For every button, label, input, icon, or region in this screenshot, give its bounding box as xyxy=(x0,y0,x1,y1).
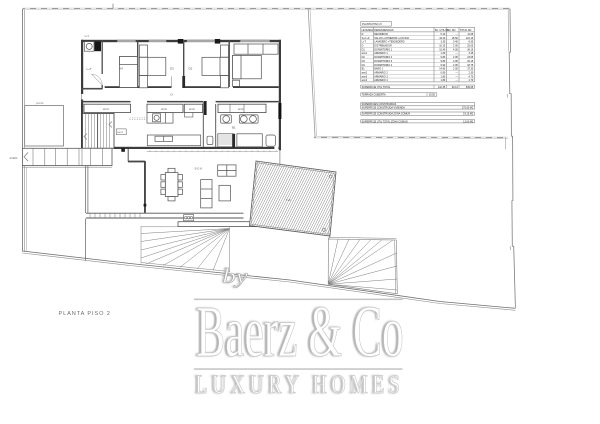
svg-text:arm2: arm2 xyxy=(189,108,195,111)
svg-text:30.13: 30.13 xyxy=(452,86,459,89)
svg-text:D: D xyxy=(171,93,174,97)
svg-text:by: by xyxy=(223,266,249,289)
svg-text:Baerz & Co: Baerz & Co xyxy=(196,290,403,371)
svg-text:170.60 M2: 170.60 M2 xyxy=(462,107,474,110)
svg-text:---: --- xyxy=(455,71,458,74)
svg-text:4.70: 4.70 xyxy=(469,75,474,78)
svg-text:9.90: 9.90 xyxy=(441,64,446,67)
svg-text:142.35: 142.35 xyxy=(438,86,446,89)
svg-text:LEYENDA: LEYENDA xyxy=(362,29,374,32)
svg-text:10.15: 10.15 xyxy=(439,45,446,48)
svg-text:arm4: arm4 xyxy=(103,108,109,111)
svg-text:DORMITORIO 2: DORMITORIO 2 xyxy=(374,56,392,59)
svg-text:B1: B1 xyxy=(232,126,236,130)
svg-text:4.05: 4.05 xyxy=(453,48,458,51)
svg-text:43.20: 43.20 xyxy=(439,37,446,40)
svg-text:2.05: 2.05 xyxy=(453,45,458,48)
svg-text:SUPERFICIE UTIL TOTAL: SUPERFICIE UTIL TOTAL xyxy=(362,86,391,89)
svg-text:arm3: arm3 xyxy=(161,108,167,111)
svg-text:RECIBIDOR: RECIBIDOR xyxy=(374,33,388,36)
svg-text:arm2: arm2 xyxy=(362,71,368,74)
svg-text:S+C+K: S+C+K xyxy=(362,37,370,40)
svg-text:D4: D4 xyxy=(119,67,123,71)
svg-text:D3: D3 xyxy=(170,67,174,71)
svg-text:2.30: 2.30 xyxy=(469,71,474,74)
svg-text:34.15: 34.15 xyxy=(467,48,474,51)
svg-text:2.05: 2.05 xyxy=(453,60,458,63)
svg-text:DEPENDENCIAS: DEPENDENCIAS xyxy=(374,29,394,32)
svg-text:PLANTA PISO 2ª: PLANTA PISO 2ª xyxy=(362,22,382,26)
svg-text:SU. M2: SU. M2 xyxy=(447,29,456,32)
svg-text:13.00 M2: 13.00 M2 xyxy=(463,120,474,123)
svg-text:122.10: 122.10 xyxy=(466,37,474,40)
svg-text:ARMARIO 3: ARMARIO 3 xyxy=(374,75,388,78)
svg-text:25.05: 25.05 xyxy=(467,45,474,48)
svg-text:18.50: 18.50 xyxy=(452,37,459,40)
svg-text:2.05: 2.05 xyxy=(453,56,458,59)
svg-text:0.80: 0.80 xyxy=(441,71,446,74)
svg-text:1.80: 1.80 xyxy=(441,79,446,82)
svg-text:DORMITORIO 4: DORMITORIO 4 xyxy=(374,64,392,67)
svg-text:23.05: 23.05 xyxy=(467,56,474,59)
svg-text:TOTAL M2: TOTAL M2 xyxy=(460,29,472,32)
svg-text:549.65: 549.65 xyxy=(466,86,474,89)
svg-text:0.40: 0.40 xyxy=(453,41,458,44)
svg-text:ARMARIO 4: ARMARIO 4 xyxy=(374,79,388,82)
svg-text:9.80: 9.80 xyxy=(441,60,446,63)
svg-text:15.40: 15.40 xyxy=(439,48,446,51)
svg-text:arm4: arm4 xyxy=(362,79,368,82)
svg-text:S-C-K: S-C-K xyxy=(195,167,203,171)
svg-text:DORMITORIO 1: DORMITORIO 1 xyxy=(374,48,392,51)
svg-text:R: R xyxy=(362,33,364,36)
svg-text:1.60: 1.60 xyxy=(441,52,446,55)
svg-text:LAVADERO +TENDEDERO: LAVADERO +TENDEDERO xyxy=(374,41,404,44)
svg-text:19.13 M2: 19.13 M2 xyxy=(463,113,474,116)
svg-text:---: --- xyxy=(455,33,458,36)
svg-text:BAÑO 1: BAÑO 1 xyxy=(374,68,384,71)
svg-text:2.05: 2.05 xyxy=(453,68,458,71)
svg-text:arm1: arm1 xyxy=(362,52,368,55)
svg-text:4.70: 4.70 xyxy=(469,79,474,82)
svg-text:04075: 04075 xyxy=(117,132,124,134)
svg-text:ACERA: ACERA xyxy=(10,157,18,160)
svg-text:SUPERFICIE CONSTRUIDA ZONA: SUPERFICIE CONSTRUIDA ZONA COMUN xyxy=(362,113,411,116)
svg-text:ARMARIO 1: ARMARIO 1 xyxy=(374,52,388,55)
svg-text:DISTRIBUIDOR: DISTRIBUIDOR xyxy=(374,45,392,48)
svg-text:L+T: L+T xyxy=(362,41,367,44)
svg-text:3.30: 3.30 xyxy=(441,41,446,44)
svg-text:D: D xyxy=(362,45,364,48)
svg-text:L+T: L+T xyxy=(87,67,92,71)
svg-text:TERRAZA CUBIERTA: TERRAZA CUBIERTA xyxy=(362,94,386,97)
svg-text:---: --- xyxy=(455,75,458,78)
svg-text:porche: porche xyxy=(36,102,44,105)
svg-text:SUPERFICIE UTIL TOTAL ZONA: SUPERFICIE UTIL TOTAL ZONA COMUN xyxy=(362,120,408,123)
svg-text:---: --- xyxy=(455,79,458,82)
svg-text:29.50: 29.50 xyxy=(429,94,436,97)
svg-text:T+C: T+C xyxy=(286,199,291,202)
svg-text:5.10: 5.10 xyxy=(441,33,446,36)
svg-text:37.30: 37.30 xyxy=(467,68,474,71)
svg-text:1.80: 1.80 xyxy=(441,75,446,78)
svg-text:ARMARIO 2: ARMARIO 2 xyxy=(374,71,388,74)
svg-text:arm3: arm3 xyxy=(362,75,368,78)
svg-text:SUPERFICIE CONSTRUIDA VIVIEN: SUPERFICIE CONSTRUIDA VIVIENDA xyxy=(362,107,406,110)
svg-text:arm1: arm1 xyxy=(238,108,244,111)
svg-text:LUXURY HOMES: LUXURY HOMES xyxy=(195,369,404,398)
svg-text:PLANTA PISO 2: PLANTA PISO 2 xyxy=(59,311,111,317)
svg-text:tend: tend xyxy=(85,35,90,38)
svg-text:DORMITORIO 3: DORMITORIO 3 xyxy=(374,60,392,63)
svg-text:14.80: 14.80 xyxy=(439,68,446,71)
svg-text:11.05: 11.05 xyxy=(467,33,474,36)
svg-text:8.35: 8.35 xyxy=(469,41,474,44)
svg-text:2.05: 2.05 xyxy=(453,64,458,67)
svg-text:3.45: 3.45 xyxy=(469,52,474,55)
svg-text:SALON +COMEDOR +COCINA: SALON +COMEDOR +COCINA xyxy=(374,37,409,40)
svg-text:D2: D2 xyxy=(189,67,193,71)
svg-text:9.80: 9.80 xyxy=(441,56,446,59)
svg-text:20.15: 20.15 xyxy=(467,60,474,63)
svg-text:---: --- xyxy=(455,52,458,55)
svg-text:18.75: 18.75 xyxy=(467,64,474,67)
